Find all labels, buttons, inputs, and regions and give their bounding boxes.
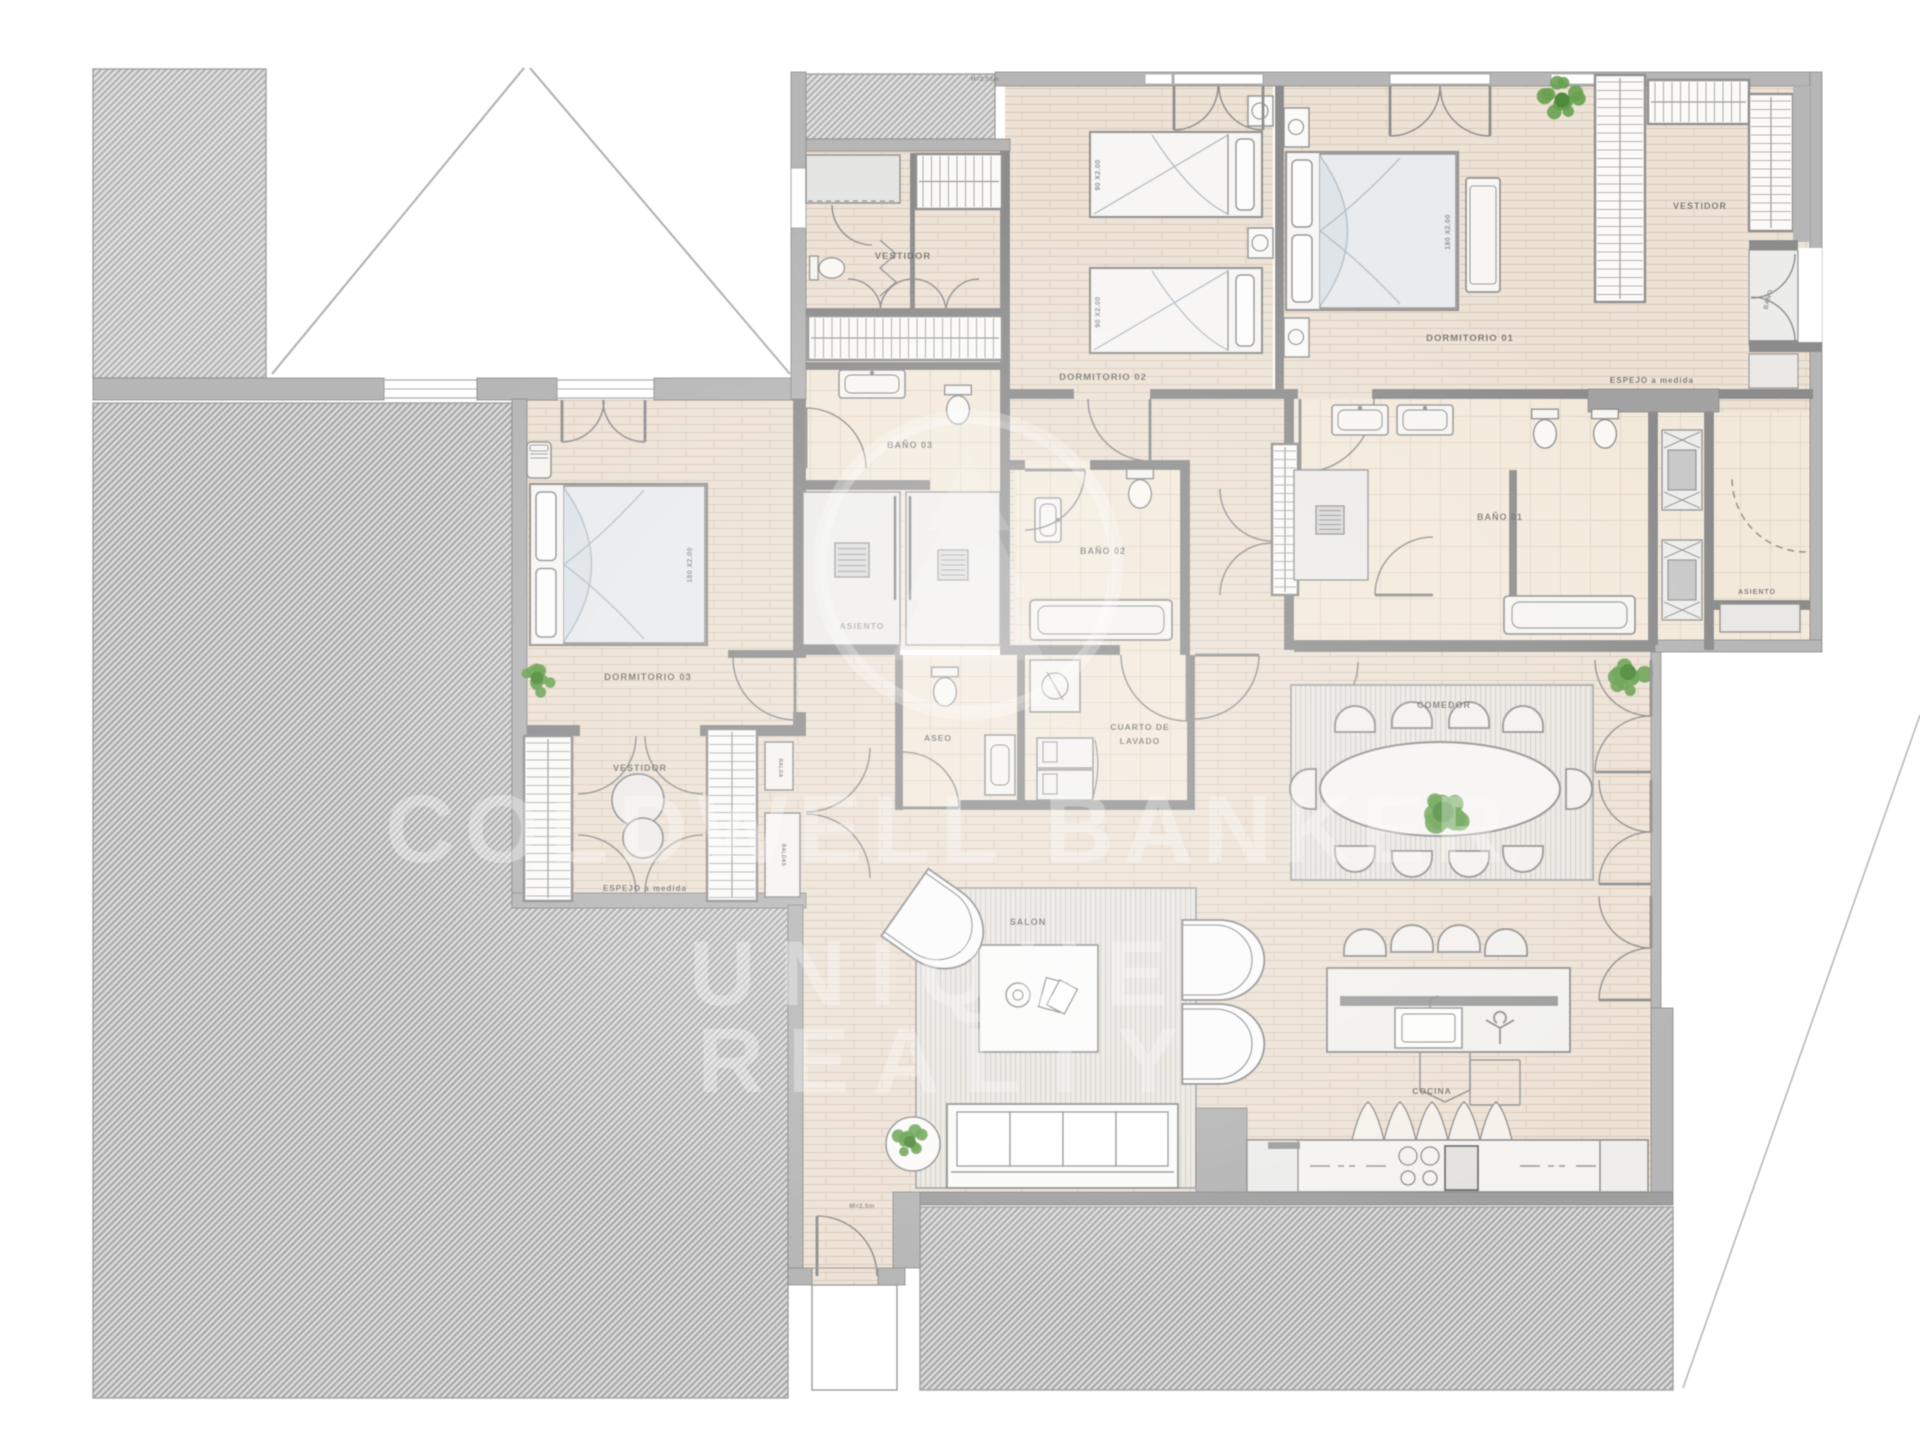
svg-text:ASIENTO: ASIENTO <box>1738 589 1776 596</box>
svg-text:180 X2.00: 180 X2.00 <box>1445 214 1452 250</box>
svg-text:ESPEJO a medida: ESPEJO a medida <box>1610 376 1694 385</box>
svg-text:VESTIDOR: VESTIDOR <box>1673 201 1727 211</box>
svg-text:H=2.53m: H=2.53m <box>971 76 999 83</box>
svg-text:REALTY: REALTY <box>697 1010 1202 1112</box>
svg-text:90 X2.00: 90 X2.00 <box>1095 159 1102 190</box>
svg-text:COLDWELL BANKER: COLDWELL BANKER <box>385 776 1515 883</box>
